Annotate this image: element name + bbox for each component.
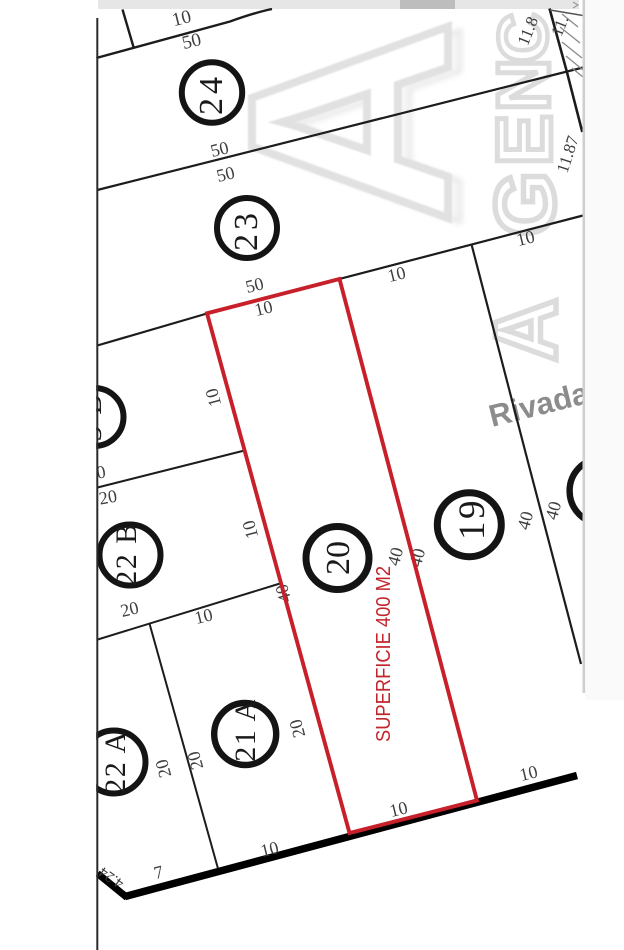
svg-text:23: 23: [228, 209, 265, 251]
svg-text:22 B: 22 B: [110, 522, 143, 586]
svg-text:N: N: [482, 58, 565, 111]
svg-text:20: 20: [97, 486, 118, 509]
svg-text:SUPERFICIE 400 M2: SUPERFICIE 400 M2: [372, 566, 395, 742]
svg-text:A: A: [476, 298, 575, 362]
svg-text:E: E: [480, 114, 568, 166]
svg-text:21 A: 21 A: [229, 698, 262, 762]
svg-text:22 A: 22 A: [99, 730, 132, 794]
svg-text:24: 24: [193, 73, 230, 115]
svg-text:19: 19: [452, 498, 493, 540]
svg-text:20: 20: [320, 541, 357, 575]
svg-text:G: G: [478, 171, 572, 236]
svg-text:A: A: [191, 19, 509, 225]
